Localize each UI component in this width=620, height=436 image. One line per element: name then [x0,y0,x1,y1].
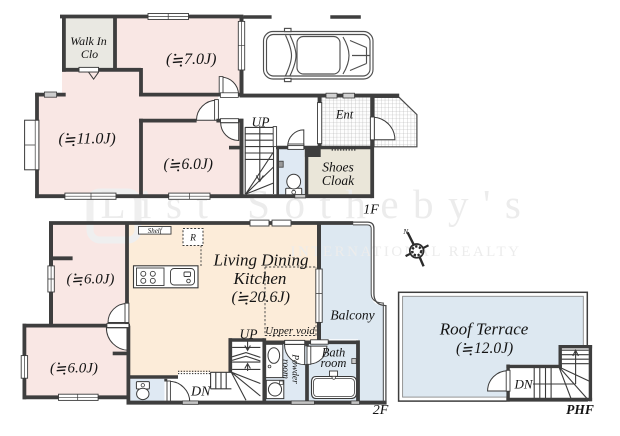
svg-text:List Sotheby's: List Sotheby's [101,181,536,227]
svg-text:(: ( [164,156,170,173]
svg-text:Roof Terrace: Roof Terrace [439,320,529,339]
svg-text:Clo: Clo [81,47,98,61]
svg-text:7.0J): 7.0J) [184,51,216,68]
svg-text:DN: DN [513,377,533,392]
svg-text:UP: UP [240,326,258,341]
svg-text:20.6J): 20.6J) [250,289,290,306]
svg-text:11.0J): 11.0J) [77,131,116,148]
svg-text:12.0J): 12.0J) [474,340,513,357]
svg-text:Upper void: Upper void [265,325,315,337]
svg-text:Walk In: Walk In [70,34,107,48]
svg-text:room: room [321,356,347,370]
svg-text:Balcony: Balcony [330,308,374,323]
svg-text:Kitchen: Kitchen [233,269,287,288]
svg-text:Shelf: Shelf [148,227,163,235]
svg-text:1F: 1F [363,202,379,217]
svg-text:N: N [402,227,409,236]
svg-text:6.0J): 6.0J) [84,271,114,287]
svg-text:PHF: PHF [566,402,594,417]
svg-text:Powder: Powder [290,353,300,384]
svg-text:DN: DN [190,385,211,400]
svg-text:UP: UP [252,115,270,130]
svg-text:6.0J): 6.0J) [182,156,213,173]
svg-text:6.0J): 6.0J) [68,360,98,376]
svg-text:2F: 2F [373,403,389,418]
svg-text:(: ( [456,340,462,357]
svg-text:INTERNATIONAL REALTY: INTERNATIONAL REALTY [291,244,522,260]
svg-text:Living Dining: Living Dining [213,251,309,270]
svg-text:R: R [189,233,196,243]
svg-text:room: room [280,359,290,379]
svg-text:Ent: Ent [335,107,354,121]
svg-text:Cloak: Cloak [322,173,355,188]
